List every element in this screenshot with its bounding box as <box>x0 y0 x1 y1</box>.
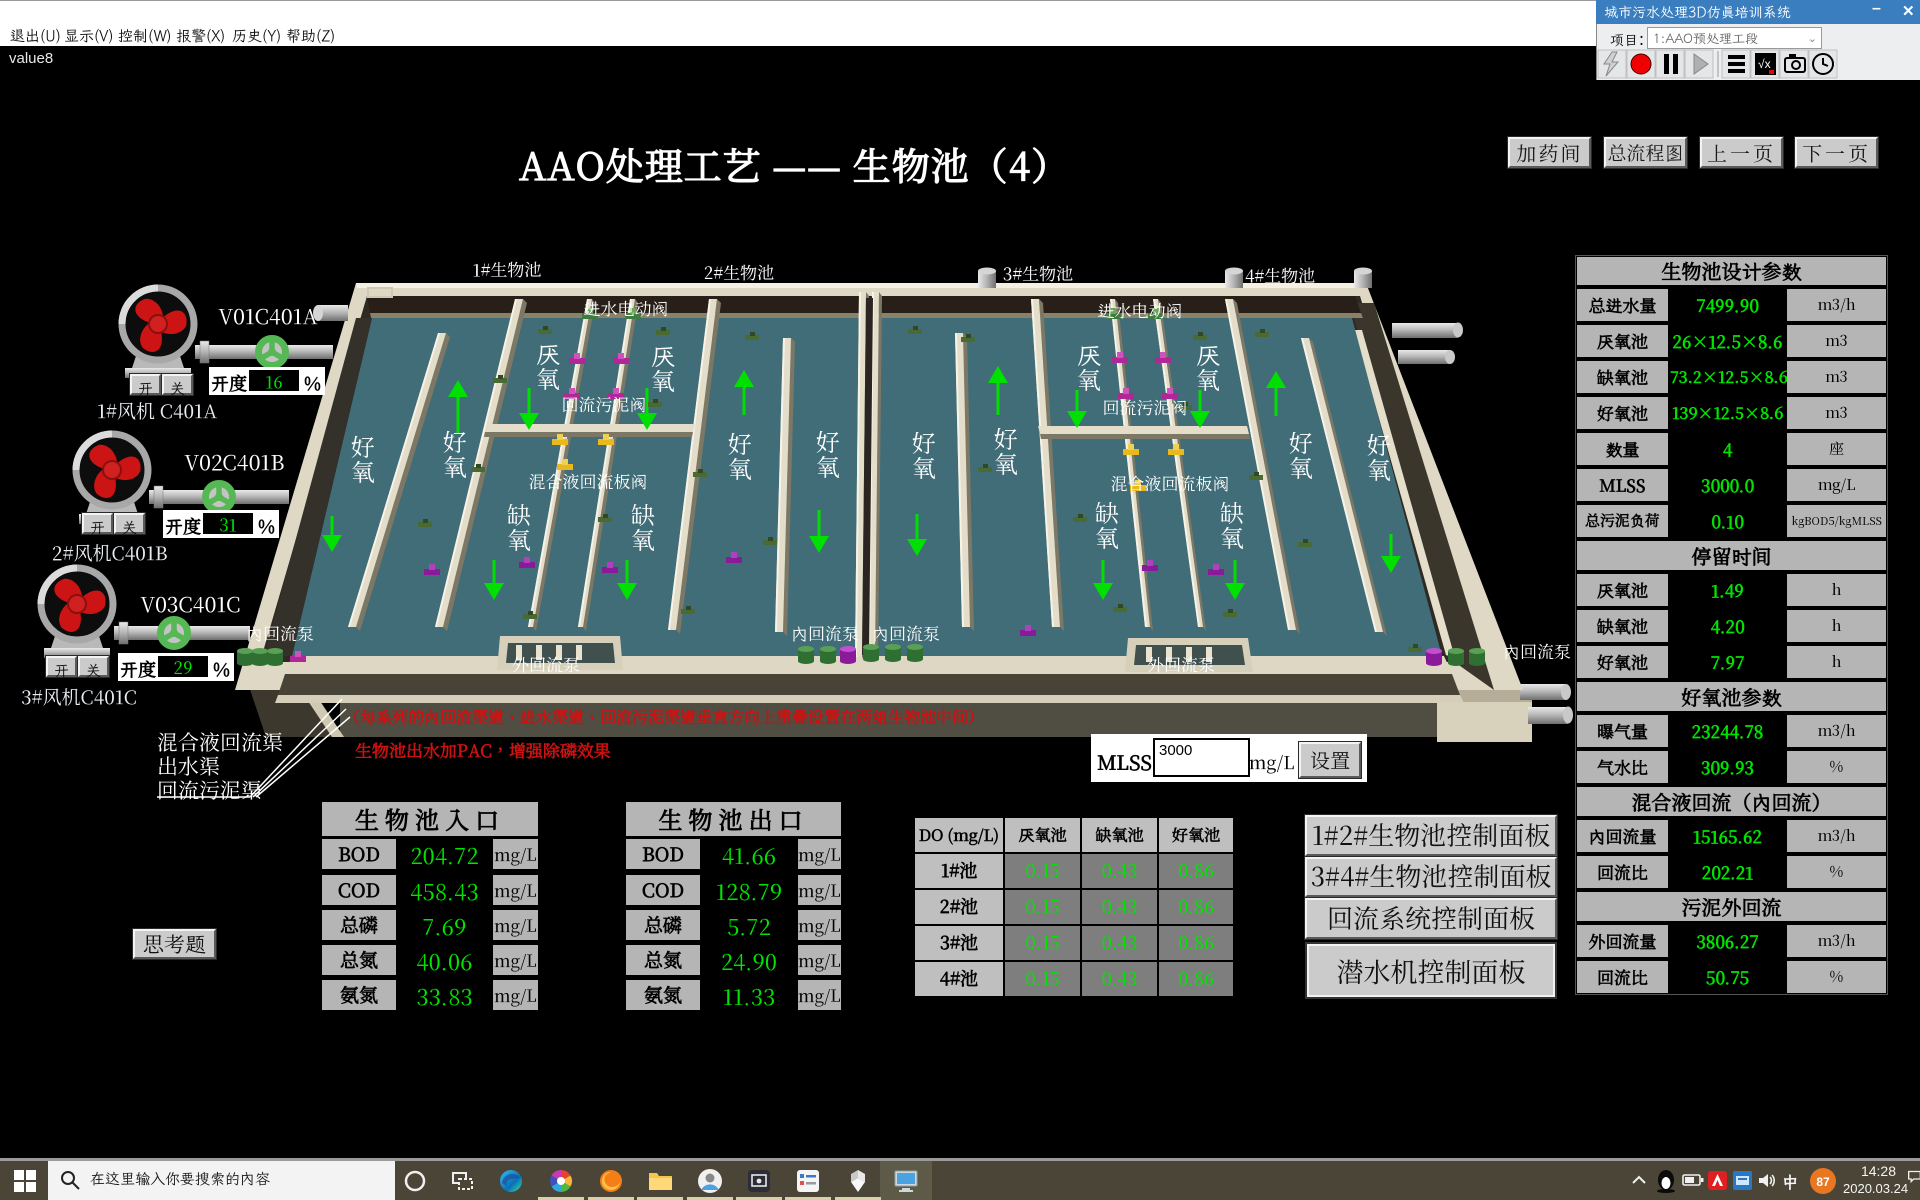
svg-text:氧: 氧 <box>816 448 840 483</box>
svg-text:外回流泵: 外回流泵 <box>512 651 580 676</box>
svg-text:内回流泵: 内回流泵 <box>246 620 314 645</box>
svg-text:氧: 氧 <box>1367 451 1391 486</box>
svg-text:1#生物池: 1#生物池 <box>473 256 542 281</box>
svg-text:进水电动阀: 进水电动阀 <box>584 295 669 320</box>
svg-text:氧: 氧 <box>1196 361 1220 396</box>
svg-text:内回流泵: 内回流泵 <box>872 620 940 645</box>
svg-text:回流污泥阀: 回流污泥阀 <box>1103 394 1188 419</box>
svg-text:内回流泵: 内回流泵 <box>1503 638 1571 663</box>
svg-text:氧: 氧 <box>912 449 936 484</box>
svg-text:氧: 氧 <box>631 521 655 556</box>
svg-text:氧: 氧 <box>1095 519 1119 554</box>
svg-text:氧: 氧 <box>1220 519 1244 554</box>
svg-text:√x: √x <box>1758 57 1771 71</box>
svg-text:2#生物池: 2#生物池 <box>704 259 774 284</box>
svg-text:混合液回流板阀: 混合液回流板阀 <box>529 468 648 493</box>
svg-text:氧: 氧 <box>507 521 531 556</box>
svg-text:进水电动阀: 进水电动阀 <box>1098 297 1183 322</box>
svg-text:氧: 氧 <box>536 360 560 395</box>
svg-text:回流污泥阀: 回流污泥阀 <box>562 391 647 416</box>
svg-text:氧: 氧 <box>1289 449 1313 484</box>
svg-text:内回流泵: 内回流泵 <box>791 620 859 645</box>
svg-text:氧: 氧 <box>728 450 752 485</box>
svg-text:氧: 氧 <box>651 362 675 397</box>
svg-text:氧: 氧 <box>351 453 375 488</box>
svg-text:3#生物池: 3#生物池 <box>1003 260 1073 285</box>
svg-text:氧: 氧 <box>994 445 1018 480</box>
svg-text:4#生物池: 4#生物池 <box>1245 262 1315 287</box>
svg-text:氧: 氧 <box>443 448 467 483</box>
svg-text:外回流泵: 外回流泵 <box>1147 651 1215 676</box>
svg-text:氧: 氧 <box>1077 361 1101 396</box>
svg-text:混合液回流板阀: 混合液回流板阀 <box>1111 470 1230 495</box>
